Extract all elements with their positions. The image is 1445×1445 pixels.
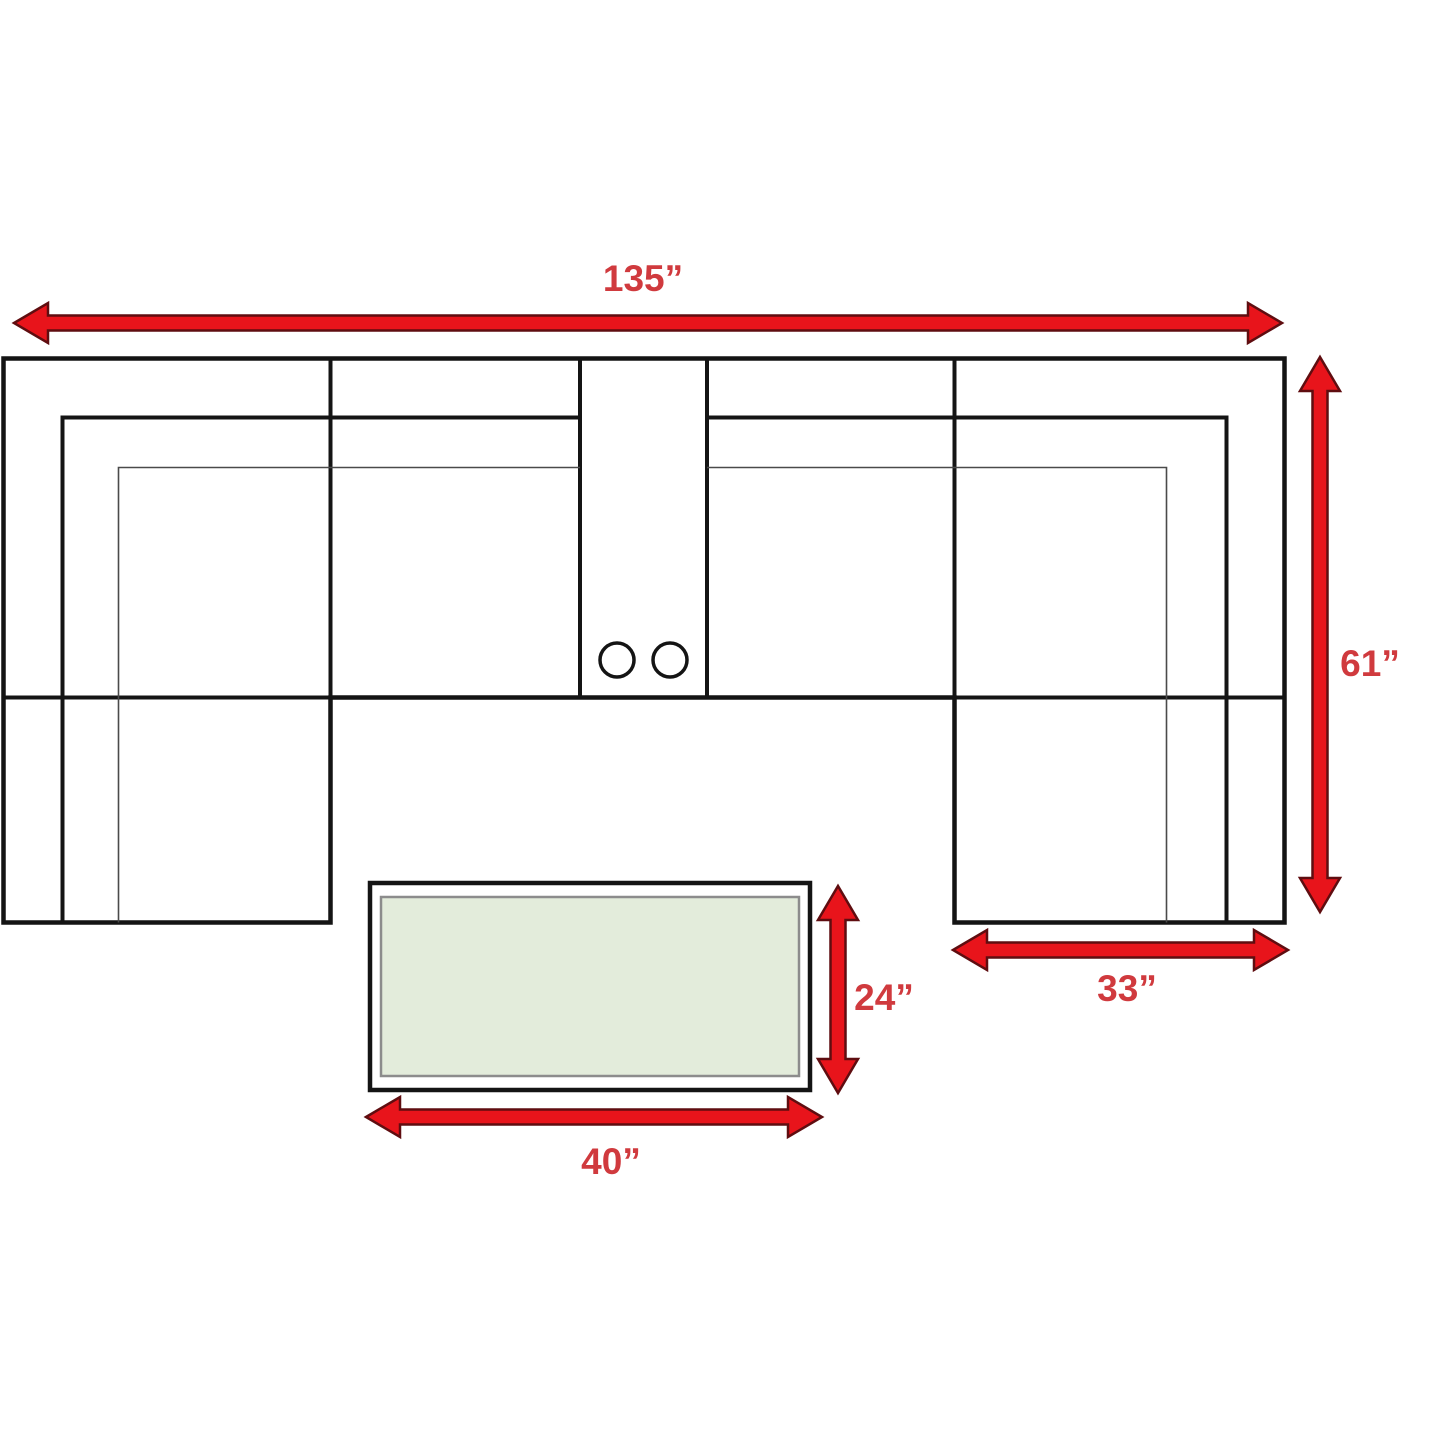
cupholder-left [600,643,634,677]
cupholder-right [653,643,687,677]
chaise-width-label: 33” [1097,968,1157,1009]
overall-width-arrow [14,303,1282,343]
table-depth-label: 24” [854,977,914,1018]
overall-depth-label: 61” [1340,643,1400,684]
sofa-outline [4,359,1285,923]
overall-width-label: 135” [603,258,683,299]
table-depth-arrow [818,886,858,1093]
chaise-width-arrow [953,930,1288,970]
overall-depth-arrow [1300,357,1340,912]
sofa-dimension-diagram: 135” 61” 33” 24” 40” [0,0,1445,1445]
table-width-label: 40” [581,1141,641,1182]
coffee-table-top [381,897,799,1076]
table-width-arrow [366,1097,822,1137]
coffee-table [370,883,810,1090]
diagram-svg: 135” 61” 33” 24” 40” [0,0,1445,1445]
sofa-plan [3,358,1285,923]
